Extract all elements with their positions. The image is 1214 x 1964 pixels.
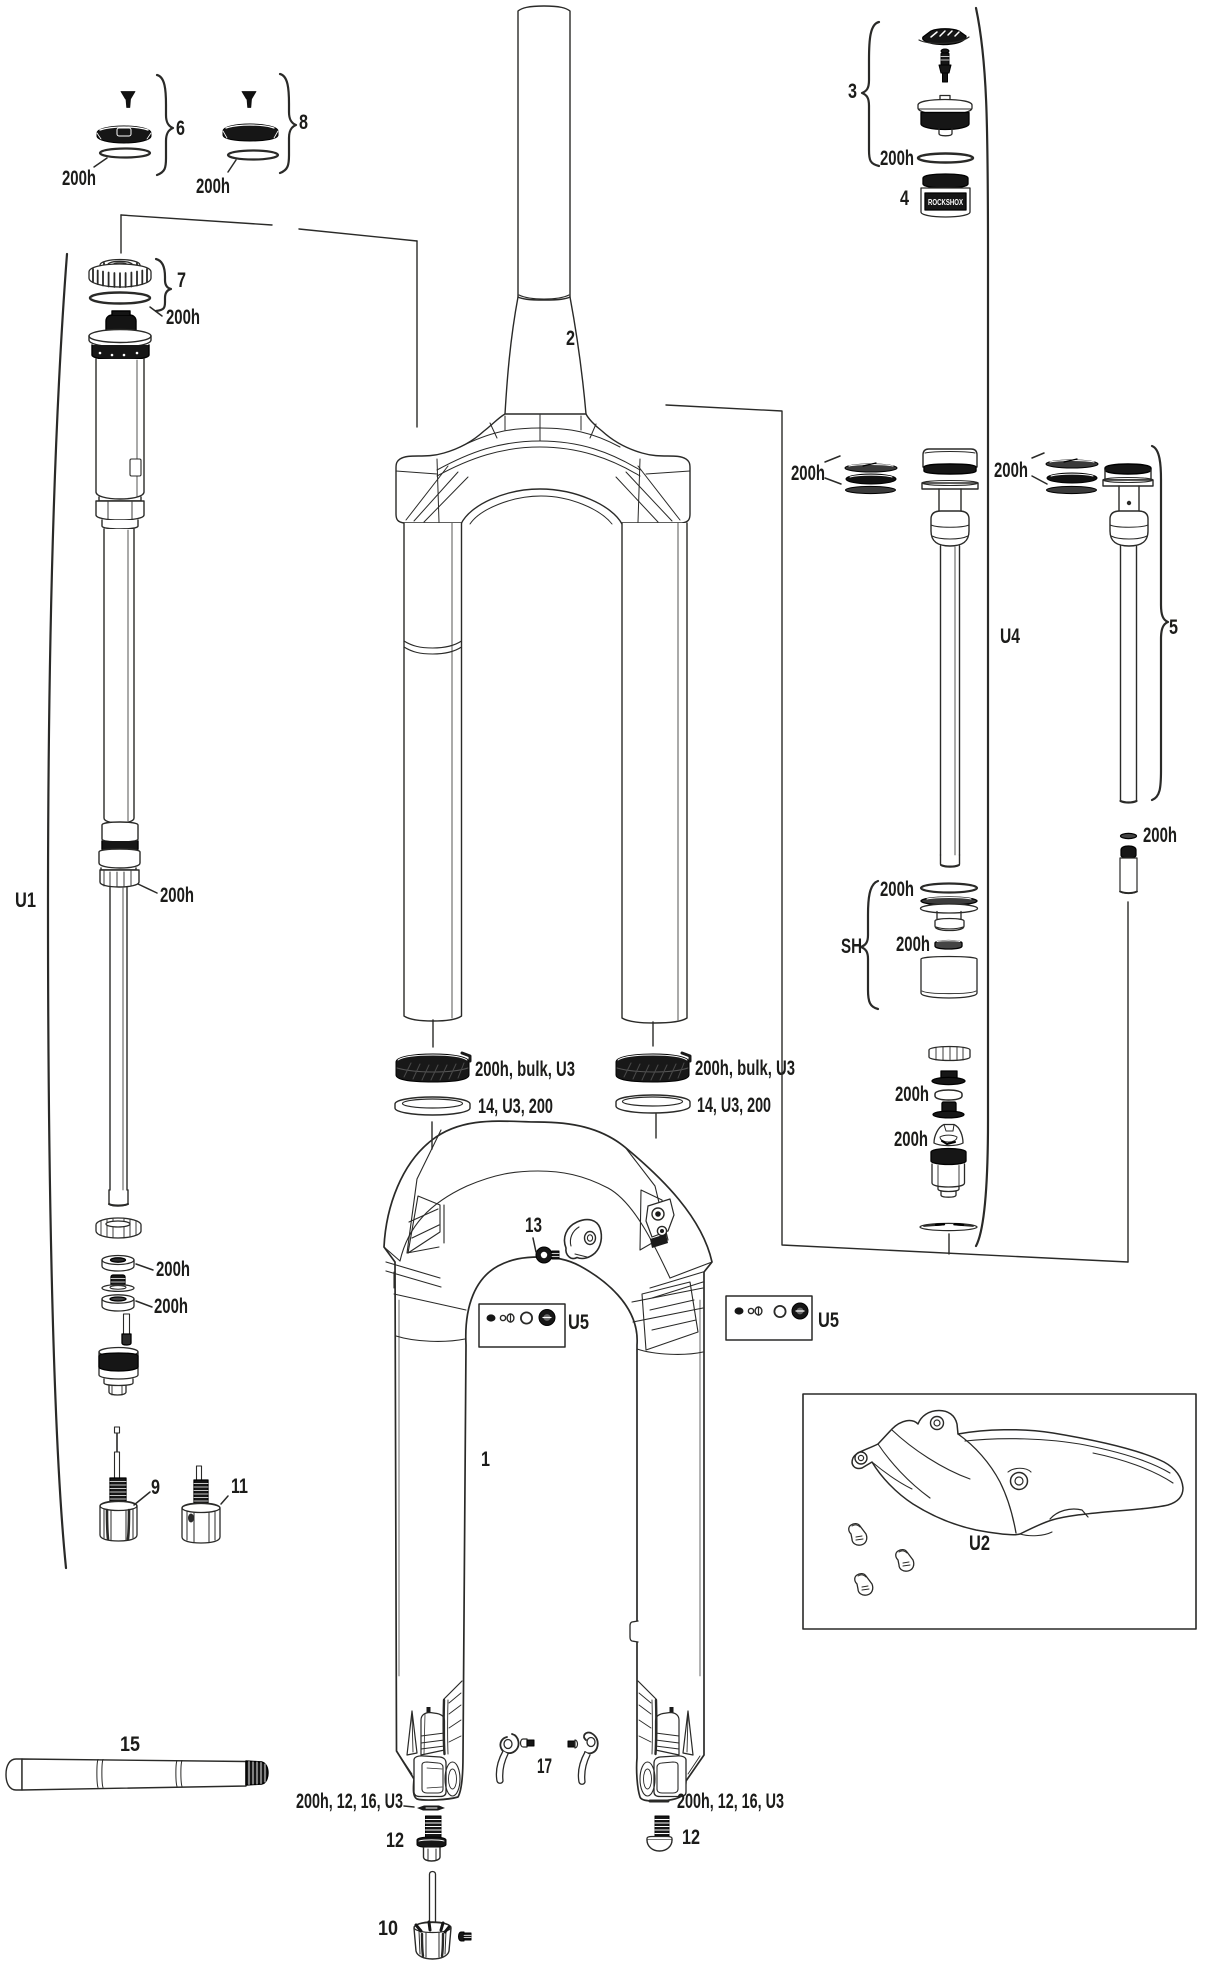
svg-text:200h: 200h bbox=[166, 306, 200, 329]
svg-text:3: 3 bbox=[848, 80, 857, 103]
svg-text:200h: 200h bbox=[160, 884, 194, 907]
svg-text:200h, 12, 16, U3: 200h, 12, 16, U3 bbox=[296, 1790, 403, 1813]
svg-text:U1: U1 bbox=[15, 889, 36, 912]
svg-text:SH: SH bbox=[841, 935, 862, 958]
svg-text:14, U3, 200: 14, U3, 200 bbox=[478, 1095, 553, 1118]
svg-text:200h, 12, 16, U3: 200h, 12, 16, U3 bbox=[677, 1790, 784, 1813]
svg-text:200h: 200h bbox=[196, 175, 230, 198]
svg-text:U2: U2 bbox=[969, 1532, 990, 1555]
svg-text:12: 12 bbox=[386, 1829, 404, 1852]
svg-text:5: 5 bbox=[1169, 616, 1178, 639]
svg-text:U5: U5 bbox=[568, 1311, 589, 1334]
svg-text:U4: U4 bbox=[1000, 625, 1020, 648]
svg-text:14, U3, 200: 14, U3, 200 bbox=[697, 1094, 771, 1117]
svg-text:200h: 200h bbox=[62, 167, 96, 190]
svg-text:200h: 200h bbox=[880, 147, 914, 170]
svg-text:11: 11 bbox=[231, 1475, 248, 1498]
svg-text:200h: 200h bbox=[880, 878, 914, 901]
svg-text:200h, bulk, U3: 200h, bulk, U3 bbox=[695, 1057, 795, 1080]
svg-text:200h: 200h bbox=[791, 462, 825, 485]
svg-text:200h, bulk, U3: 200h, bulk, U3 bbox=[475, 1058, 575, 1081]
svg-text:7: 7 bbox=[177, 269, 186, 292]
svg-text:10: 10 bbox=[378, 1917, 398, 1940]
svg-text:4: 4 bbox=[900, 187, 909, 210]
svg-text:8: 8 bbox=[299, 111, 308, 134]
svg-text:12: 12 bbox=[682, 1826, 700, 1849]
svg-text:13: 13 bbox=[525, 1214, 542, 1237]
svg-text:ROCKSHOX: ROCKSHOX bbox=[928, 198, 963, 207]
svg-text:15: 15 bbox=[120, 1733, 140, 1756]
svg-text:200h: 200h bbox=[994, 459, 1028, 482]
svg-text:200h: 200h bbox=[1143, 824, 1177, 847]
svg-text:200h: 200h bbox=[894, 1128, 928, 1151]
svg-text:17: 17 bbox=[537, 1755, 552, 1778]
svg-text:6: 6 bbox=[176, 117, 185, 140]
svg-text:200h: 200h bbox=[156, 1258, 190, 1281]
svg-text:200h: 200h bbox=[896, 933, 930, 956]
svg-text:U5: U5 bbox=[818, 1309, 839, 1332]
svg-text:2: 2 bbox=[566, 327, 575, 350]
svg-text:200h: 200h bbox=[895, 1083, 929, 1106]
svg-text:9: 9 bbox=[151, 1476, 160, 1499]
svg-text:200h: 200h bbox=[154, 1295, 188, 1318]
svg-text:1: 1 bbox=[481, 1448, 490, 1471]
